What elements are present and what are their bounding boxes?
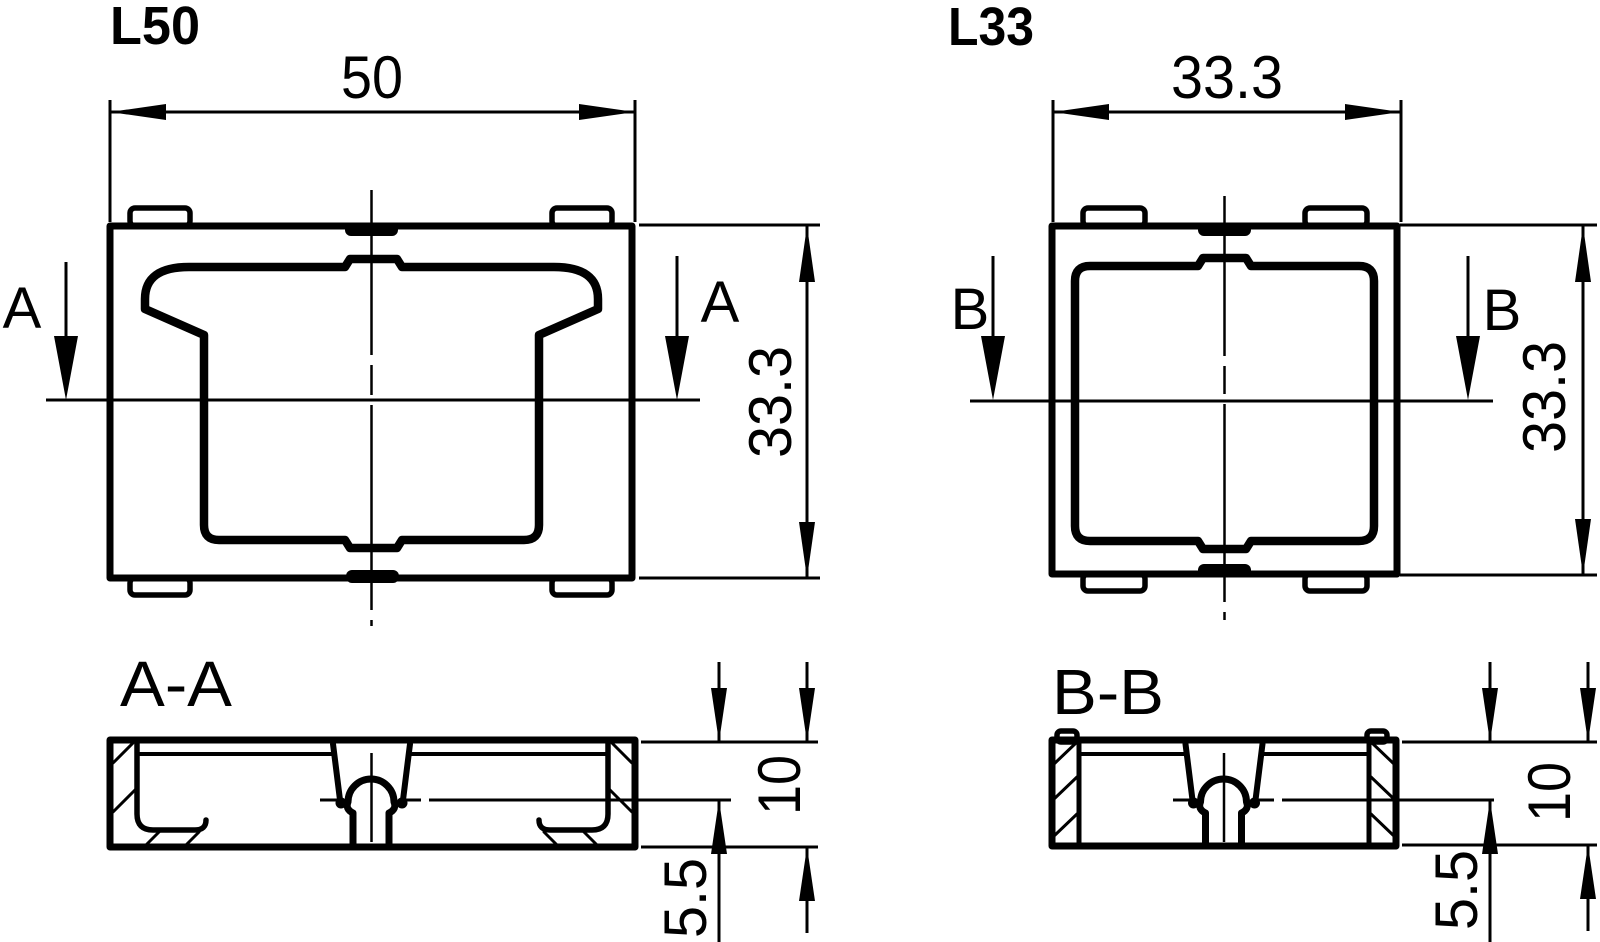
section-arrow-a-left: A (3, 262, 78, 400)
section-arrow-a-right: A (665, 256, 740, 400)
lip-hook-left (137, 743, 206, 830)
section-label: B-B (1052, 656, 1164, 728)
section-arrowhead (1456, 336, 1480, 400)
section-letter: A (701, 270, 740, 335)
snap-hook-section (333, 744, 410, 846)
part-title: L33 (948, 0, 1034, 57)
dim-bb-lip-depth: 5.5 (1423, 662, 1498, 942)
dim-text-height: 33.3 (1511, 341, 1578, 453)
section-label: A-A (120, 648, 232, 720)
dim-text-lip-depth: 5.5 (1423, 850, 1490, 930)
part-l50-top-view: A A 50 33.3 (3, 44, 820, 626)
dim-aa-lip-depth: 5.5 (652, 662, 727, 942)
section-view-a-a: A-A (110, 648, 818, 942)
section-letter: B (1483, 278, 1522, 343)
part-l50: L50 A (3, 0, 820, 942)
dim-text-thickness: 10 (746, 755, 813, 815)
section-arrowhead (981, 336, 1005, 400)
section-letter: A (3, 276, 42, 341)
section-arrowhead (665, 336, 689, 400)
part-l33: L33 B B (948, 0, 1597, 942)
dim-text-lip-depth: 5.5 (652, 858, 719, 938)
part-l33-top-view: B B 33.3 33.3 (951, 44, 1597, 620)
drawing-canvas: L50 A (0, 0, 1600, 942)
dim-text-thickness: 10 (1516, 762, 1583, 822)
dim-text-width: 50 (341, 44, 403, 111)
section-arrowhead (54, 336, 78, 400)
section-letter: B (951, 277, 990, 342)
snap-hook-section (1186, 744, 1263, 845)
section-view-b-b: B-B 10 (1052, 656, 1597, 942)
dim-l33-width: 33.3 (1053, 44, 1401, 222)
dim-text-width: 33.3 (1171, 44, 1283, 111)
lip-hook-right (539, 743, 608, 830)
technical-drawing: L50 A (0, 0, 1600, 942)
section-arrow-b-left: B (951, 256, 1005, 400)
dim-text-height: 33.3 (737, 346, 804, 458)
part-title: L50 (110, 0, 200, 56)
